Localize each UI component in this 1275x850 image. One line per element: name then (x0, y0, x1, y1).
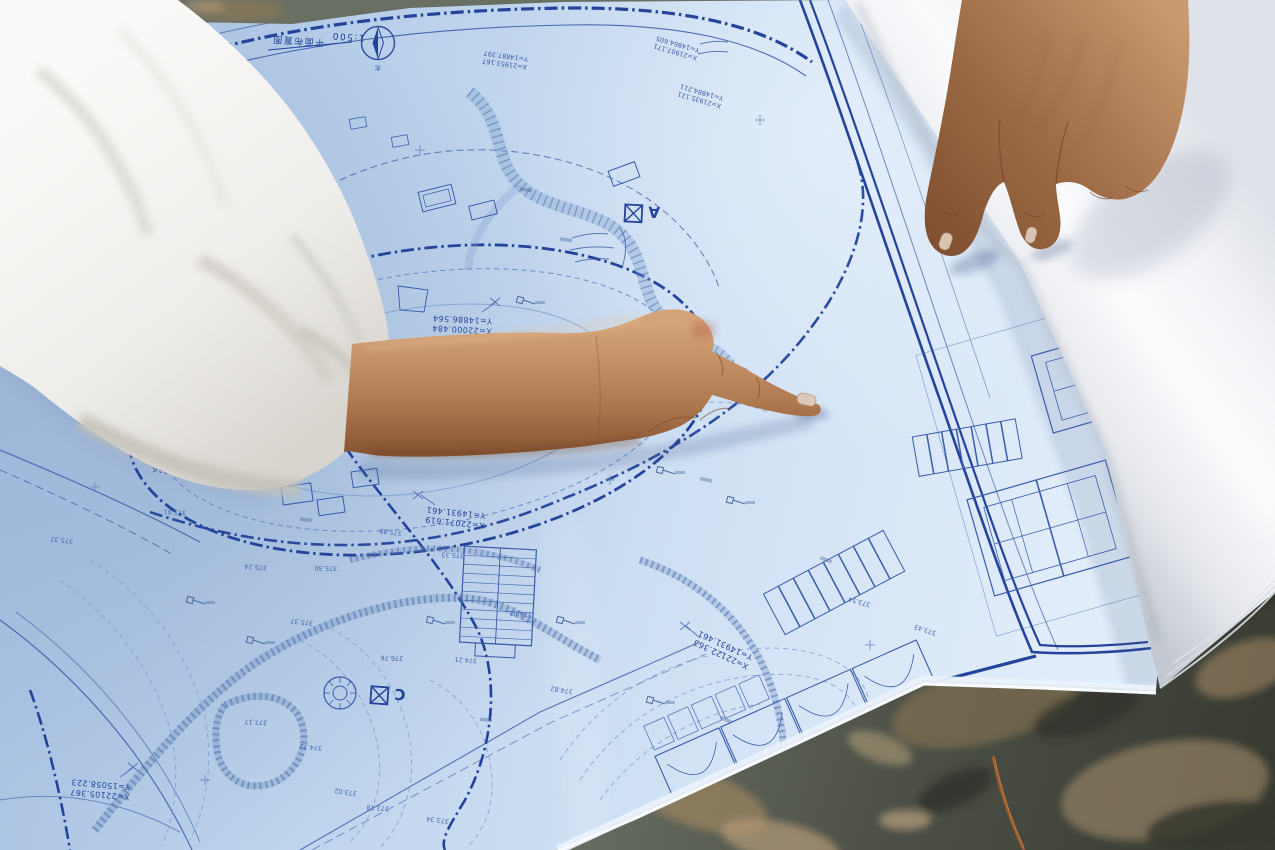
spot-elevation: 375.01 (163, 507, 186, 516)
coordinate-label: X=22000.484 Y=14886.564 (432, 313, 493, 335)
spot-elevation: 377.17 (244, 717, 267, 726)
spot-elevation: 375.33 (441, 550, 464, 559)
north-label: 北 (375, 64, 382, 72)
zone-marker-label: C (394, 685, 406, 704)
spot-elevation: 374.21 (454, 655, 477, 665)
spot-elevation: 375.24 (244, 562, 267, 572)
spot-elevation: 376.76 (380, 654, 403, 663)
photo-canvas: 北 平面布置图 1:500 X=21958.732 Y=14919.326 X=… (0, 0, 1275, 850)
scene-photo: 北 平面布置图 1:500 X=21958.732 Y=14919.326 X=… (0, 0, 1275, 850)
spot-elevation: 375.30 (315, 564, 338, 572)
paper-fold-sheen (560, 520, 592, 850)
zone-marker-label: A (647, 203, 660, 222)
spot-elevation: 373.18 (366, 803, 389, 813)
knuckle-blotch (691, 321, 715, 339)
